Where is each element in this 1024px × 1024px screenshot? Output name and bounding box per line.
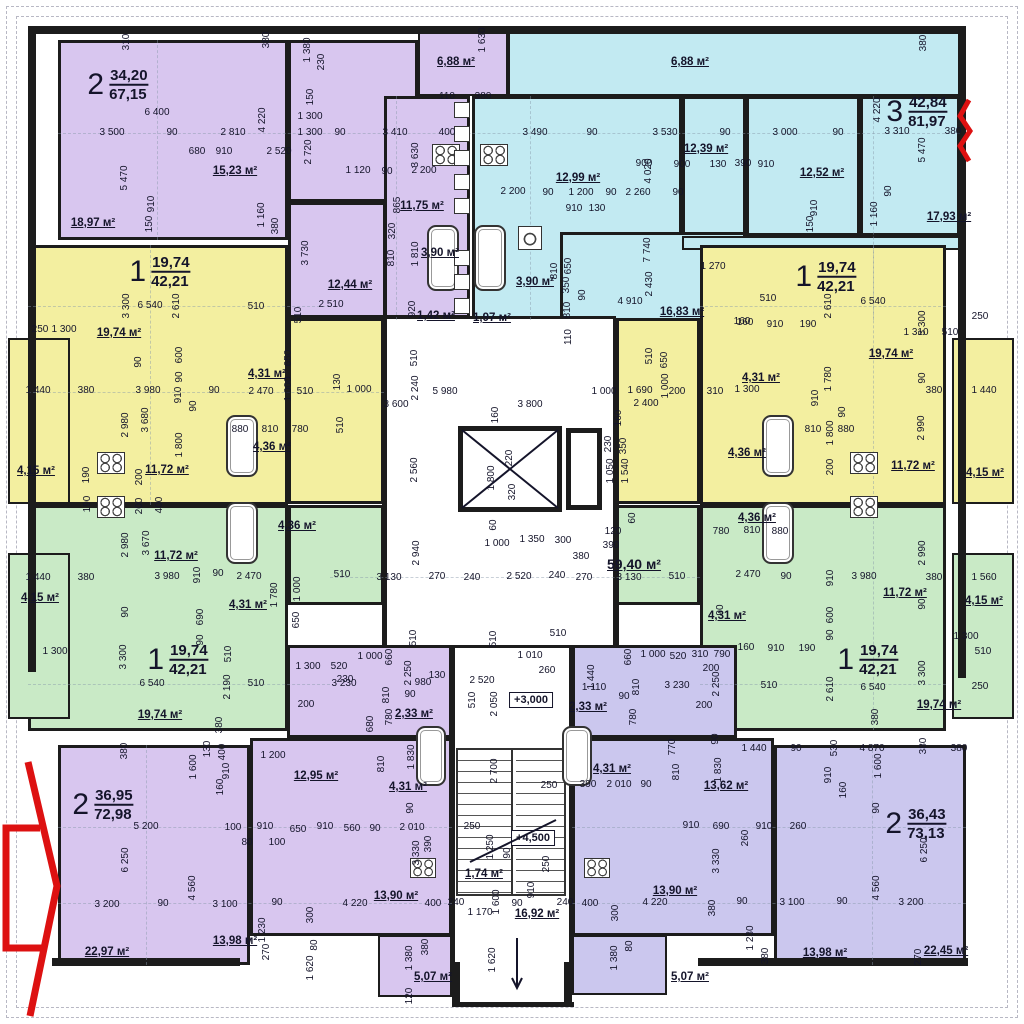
apartment-label: 236,4373,13	[885, 806, 946, 843]
dim-label: 1 780	[270, 582, 280, 607]
balcony-507-left	[378, 935, 452, 997]
wall-segment	[698, 958, 968, 966]
dim-label: 390	[424, 836, 434, 853]
room-area-label: 5,07 м²	[414, 971, 452, 983]
dim-label: 3 130	[616, 573, 641, 583]
dim-label: 380	[919, 35, 929, 52]
wall-segment	[30, 26, 966, 34]
dim-label: 1 600	[492, 889, 502, 914]
room-area-label: 19,74 м²	[97, 327, 141, 339]
dim-label: 3 200	[94, 900, 119, 910]
dim-label: 130	[333, 374, 343, 391]
dim-label: 780	[385, 709, 395, 726]
dim-label: 910	[527, 882, 537, 899]
tub-icon	[226, 502, 258, 564]
stove-icon	[97, 496, 125, 518]
shaft-icon	[566, 428, 602, 510]
dim-label: 90	[838, 406, 848, 417]
dim-label: 190	[83, 496, 93, 513]
dim-label: 2 010	[606, 780, 631, 790]
dim-label: 400	[155, 497, 165, 514]
dim-label: 1 000	[591, 387, 616, 397]
dim-label: 380	[573, 552, 590, 562]
apt1-yl-col	[288, 318, 384, 504]
floor-plan: 3103801 3802301506 4003 500902 8104 2201…	[0, 0, 1024, 1024]
dim-label: 380	[475, 92, 492, 102]
dim-label: 90	[271, 898, 282, 908]
dim-label: 2 560	[410, 457, 420, 482]
dim-label: 810	[632, 679, 642, 696]
dim-label: 650	[292, 612, 302, 629]
dim-label: 4 220	[873, 97, 883, 122]
dim-label: 530	[830, 740, 840, 757]
dim-label: 320	[508, 484, 518, 501]
dim-label: 90	[369, 824, 380, 834]
dim-label: 90	[790, 744, 801, 754]
dim-label: 1 540	[621, 458, 631, 483]
dim-label: 1 300	[295, 662, 320, 672]
room-area-label: 6,88 м²	[437, 56, 475, 68]
dim-label: 2 400	[633, 399, 658, 409]
dim-label: 510	[248, 679, 265, 689]
dim-label: 3 530	[652, 128, 677, 138]
dim-label: 3 680	[141, 407, 151, 432]
dim-label: 3 600	[383, 400, 408, 410]
dim-label: 880	[772, 527, 789, 537]
dim-label: 1 380	[610, 945, 620, 970]
dim-label: 910	[767, 320, 784, 330]
dim-label: 100	[269, 838, 286, 848]
dim-label: 910	[257, 822, 274, 832]
room-area-label: 12,39 м²	[684, 143, 728, 155]
dim-label: 910	[810, 200, 820, 217]
room-area-label: 6,88 м²	[671, 56, 709, 68]
room-area-label: 15,23 м²	[213, 165, 257, 177]
room-area-label: 4,36 м²	[253, 441, 291, 453]
dim-label: 380	[78, 386, 95, 396]
dim-label: 690	[196, 609, 206, 626]
total-area-value: 42,21	[151, 273, 191, 290]
dim-label: 3 980	[154, 572, 179, 582]
dim-label: 1 600	[874, 753, 884, 778]
dim-label: 910	[216, 147, 233, 157]
room-area-label: 1,74 м²	[465, 868, 503, 880]
dim-label: 130	[429, 671, 446, 681]
dim-label: 2 470	[236, 572, 261, 582]
dim-label: 5 470	[120, 165, 130, 190]
apartment-label: 236,9572,98	[72, 787, 133, 824]
apt3-top-strip	[508, 26, 960, 96]
room-area-label: 11,72 м²	[883, 587, 927, 599]
dim-label: 230	[604, 436, 614, 453]
total-area-value: 81,97	[908, 113, 948, 130]
dim-label: 120	[405, 988, 415, 1005]
stove-icon	[97, 452, 125, 474]
dim-label: 1 810	[411, 241, 421, 266]
dim-label: 2 810	[220, 128, 245, 138]
dim-label: 90	[121, 606, 131, 617]
room-area-label: 22,97 м²	[85, 946, 129, 958]
dim-label: 250	[464, 822, 481, 832]
apartment-areas: 36,4373,13	[907, 806, 947, 843]
dim-label: 160	[216, 779, 226, 796]
dim-label: 350	[619, 438, 629, 455]
dim-label: 510	[550, 629, 567, 639]
box-icon	[454, 150, 470, 166]
dim-label: 400	[582, 899, 599, 909]
dim-label: 910	[317, 822, 334, 832]
dim-label: 100	[225, 823, 242, 833]
dim-label: 2 700	[490, 758, 500, 783]
dim-label: 910	[826, 570, 836, 587]
dim-label: 1 000	[484, 539, 509, 549]
wash-icon	[518, 226, 542, 250]
dim-label: 1 000	[357, 652, 382, 662]
room-area-label: 4,15 м²	[17, 465, 55, 477]
tub-icon	[762, 415, 794, 477]
room-area-label: 59,40 м²	[607, 556, 661, 572]
apartment-label: 342,8481,97	[886, 94, 947, 131]
room-area-label: 11,72 м²	[891, 460, 935, 472]
dim-label: 90	[832, 128, 843, 138]
dim-label: 80	[310, 939, 320, 950]
dim-label: 200	[135, 469, 145, 486]
dim-label: 300	[306, 907, 316, 924]
dim-label: 130	[589, 204, 606, 214]
dim-label: 2 200	[500, 187, 525, 197]
dim-label: 5 980	[432, 387, 457, 397]
dim-label: 1 440	[971, 386, 996, 396]
total-area-value: 42,21	[817, 278, 857, 295]
dim-label: 3 630	[411, 142, 421, 167]
dim-label: 2 610	[826, 676, 836, 701]
dim-label: 810	[672, 764, 682, 781]
dim-label: 650	[660, 352, 670, 369]
dim-label: 1 160	[257, 202, 267, 227]
dim-label: 240	[448, 898, 465, 908]
apartment-label: 119,7442,21	[147, 642, 208, 679]
box-icon	[454, 198, 470, 214]
dim-label: 90	[406, 802, 416, 813]
dim-label: 380	[919, 738, 929, 755]
dim-label: 90	[711, 733, 721, 744]
wall-segment	[958, 26, 966, 678]
dim-label: 790	[714, 650, 731, 660]
dim-label: 510	[336, 417, 346, 434]
dim-label: 510	[410, 350, 420, 367]
dim-label: 270	[262, 944, 272, 961]
dim-label: 2 940	[412, 540, 422, 565]
dim-label: 1 300	[297, 112, 322, 122]
dim-label: 230	[337, 675, 354, 685]
apartment-rooms-count: 1	[129, 255, 146, 289]
dim-label: 510	[669, 572, 686, 582]
dim-label: 380	[215, 717, 225, 734]
dim-label: 380	[271, 218, 281, 235]
axis-line	[28, 684, 330, 685]
dim-label: 510	[297, 387, 314, 397]
room-area-label: 11,75 м²	[400, 200, 444, 212]
axis-line	[157, 40, 158, 240]
dim-label: 310	[122, 34, 132, 51]
apartment-areas: 34,2067,15	[109, 67, 149, 104]
dim-label: 4 910	[617, 297, 642, 307]
dim-label: 520	[670, 652, 687, 662]
dim-label: 350	[562, 277, 572, 294]
dim-label: 3 330	[712, 848, 722, 873]
dim-label: 160	[491, 407, 501, 424]
dim-label: 1 000	[346, 385, 371, 395]
apartment-rooms-count: 3	[886, 95, 903, 129]
dim-label: 6 540	[860, 297, 885, 307]
dim-label: 400	[425, 899, 442, 909]
dim-label: 2 990	[917, 415, 927, 440]
dim-label: 300	[555, 536, 572, 546]
dim-label: 1 780	[824, 366, 834, 391]
dim-label: 510	[761, 681, 778, 691]
dim-label: 1 120	[345, 166, 370, 176]
room-area-label: 4,31 м²	[229, 599, 267, 611]
dim-label: 650	[284, 350, 294, 367]
dim-label: 1 440	[741, 744, 766, 754]
dim-label: 1 110	[582, 683, 606, 693]
dim-label: 1 440	[25, 573, 50, 583]
dim-label: 270	[914, 949, 924, 966]
living-area-value: 36,95	[94, 787, 134, 806]
dim-label: 380	[708, 900, 718, 917]
dim-label: 2 520	[469, 676, 494, 686]
dim-label: 400	[439, 128, 456, 138]
axis-line	[58, 827, 452, 828]
dim-label: 380	[421, 939, 431, 956]
dim-label: 1 000	[640, 650, 665, 660]
dim-label: 510	[645, 348, 655, 365]
dim-label: 2 510	[318, 300, 343, 310]
dim-label: 90	[836, 897, 847, 907]
dim-label: 380	[871, 709, 881, 726]
room-area-label: 2,33 м²	[569, 701, 607, 713]
dim-label: 810	[563, 302, 573, 319]
dim-label: 1 800	[826, 420, 836, 445]
dim-label: 6 250	[121, 847, 131, 872]
dim-label: 250	[972, 312, 989, 322]
dim-label: 1 300	[42, 647, 67, 657]
room-area-label: 13,98 м²	[213, 935, 257, 947]
living-area-value: 36,43	[907, 806, 947, 825]
dim-label: 1 200	[568, 188, 593, 198]
room-area-label: 12,44 м²	[328, 279, 372, 291]
dim-label: 90	[586, 128, 597, 138]
level-mark: +4,500	[511, 830, 555, 846]
room-area-label: 13,98 м²	[803, 947, 847, 959]
apartment-rooms-count: 1	[795, 260, 812, 294]
room-area-label: 4,15 м²	[966, 467, 1004, 479]
apt2-br-living	[774, 745, 966, 965]
dim-label: 660	[624, 649, 634, 666]
dim-label: 2 010	[399, 823, 424, 833]
dim-label: 250	[541, 781, 558, 791]
dim-label: 110	[564, 329, 574, 345]
dim-label: 240	[557, 898, 574, 908]
dim-label: 90	[381, 167, 392, 177]
living-area-value: 34,20	[109, 67, 149, 86]
dim-label: 90	[503, 847, 513, 858]
dim-label: 3 000	[772, 128, 797, 138]
dim-label: 380	[926, 386, 943, 396]
total-area-value: 72,98	[94, 806, 134, 823]
dim-label: 510	[975, 647, 992, 657]
dim-label: 90	[672, 188, 683, 198]
dim-label: 4 560	[872, 875, 882, 900]
dim-label: 3 490	[522, 128, 547, 138]
dim-label: 900	[674, 160, 691, 170]
dim-label: 120	[605, 527, 622, 537]
dim-label: 2 050	[490, 691, 500, 716]
dim-label: 200	[826, 459, 836, 476]
dim-label: 1 000	[284, 376, 294, 401]
room-area-label: 1,97 м²	[473, 312, 511, 324]
dim-label: 660	[385, 649, 395, 666]
dim-label: 2 250	[404, 660, 414, 685]
dim-label: 90	[134, 356, 144, 367]
axis-line	[700, 684, 946, 685]
dim-label: 560	[344, 824, 361, 834]
dim-label: 600	[826, 607, 836, 624]
dim-label: 2 980	[121, 532, 131, 557]
room-area-label: 5,07 м²	[671, 971, 709, 983]
dim-label: 2 610	[172, 293, 182, 318]
dim-label: 3 330	[412, 840, 422, 865]
total-area-value: 73,13	[907, 825, 947, 842]
dim-label: 4 220	[258, 107, 268, 132]
apartment-areas: 19,7442,21	[859, 642, 899, 679]
dim-label: 90	[780, 572, 791, 582]
dim-label: 510	[294, 307, 304, 324]
dim-label: 380	[951, 744, 968, 754]
dim-label: 1 350	[519, 535, 544, 545]
dim-label: 1 010	[517, 651, 542, 661]
dim-label: 780	[713, 527, 730, 537]
dim-label: 200	[298, 700, 315, 710]
dim-label: 2 990	[918, 540, 928, 565]
dim-label: 510	[760, 294, 777, 304]
dim-label: 190	[800, 320, 817, 330]
room-area-label: 13,90 м²	[653, 885, 697, 897]
dim-label: 230	[317, 54, 327, 71]
stove-icon	[850, 496, 878, 518]
room-area-label: 4,31 м²	[389, 781, 427, 793]
dim-label: 780	[292, 425, 309, 435]
wall-segment	[452, 962, 460, 1006]
dim-label: 250	[972, 682, 989, 692]
dim-label: 1 440	[25, 386, 50, 396]
dim-label: 6 400	[144, 108, 169, 118]
dim-label: 90	[189, 400, 199, 411]
dim-label: 1 300	[734, 385, 759, 395]
dim-label: 380	[926, 573, 943, 583]
apartment-label: 234,2067,15	[87, 67, 148, 104]
dim-label: 880	[232, 425, 249, 435]
tub-icon	[474, 225, 506, 291]
wall-segment	[564, 962, 572, 1006]
dim-label: 2 190	[223, 674, 233, 699]
dim-label: 1 620	[306, 955, 316, 980]
dim-label: 910	[768, 644, 785, 654]
room-area-label: 4,15 м²	[21, 592, 59, 604]
dim-label: 1 000	[293, 576, 303, 601]
wall-segment	[452, 1002, 574, 1007]
dim-label: 80	[625, 940, 635, 951]
dim-label: 510	[248, 302, 265, 312]
room-area-label: 4,36 м²	[728, 447, 766, 459]
dim-label: 770	[668, 739, 678, 756]
room-area-label: 3,90 м²	[421, 247, 459, 259]
apartment-areas: 19,7442,21	[151, 254, 191, 291]
dim-label: 5 200	[133, 822, 158, 832]
dim-label: 880	[838, 425, 855, 435]
dim-label: 1 630	[478, 27, 488, 52]
box-icon	[454, 126, 470, 142]
dim-label: 3 100	[779, 898, 804, 908]
dim-label: 90	[212, 569, 223, 579]
dim-label: 810	[744, 526, 761, 536]
dim-label: 1 300	[51, 325, 76, 335]
dim-label: 1 230	[746, 925, 756, 950]
room-area-label: 3,90 м²	[516, 276, 554, 288]
apartment-rooms-count: 1	[147, 643, 164, 677]
dim-label: 1 300	[297, 128, 322, 138]
dim-label: 3 980	[851, 572, 876, 582]
apartment-label: 119,7442,21	[837, 642, 898, 679]
dim-label: 910	[174, 387, 184, 404]
dim-label: 7 740	[643, 237, 653, 262]
box-icon	[454, 274, 470, 290]
dim-label: 690	[713, 822, 730, 832]
dim-label: 90	[872, 802, 882, 813]
dim-label: 1 800	[175, 432, 185, 457]
dim-label: 510	[409, 630, 419, 647]
dim-label: 90	[542, 188, 553, 198]
dim-label: 190	[799, 644, 816, 654]
dim-label: 3 730	[301, 240, 311, 265]
dim-label: 270	[429, 572, 446, 582]
dim-label: 910	[193, 567, 203, 584]
dim-label: 3 100	[212, 900, 237, 910]
dim-label: 260	[790, 822, 807, 832]
dim-label: 90	[578, 289, 588, 300]
dim-label: 3 670	[142, 530, 152, 555]
dim-label: 200	[135, 498, 145, 515]
dim-label: 160	[738, 643, 755, 653]
dim-label: 60	[489, 519, 499, 530]
dim-label: 400	[218, 744, 228, 761]
room-area-label: 1,42 м²	[417, 310, 455, 322]
dim-label: 250	[542, 856, 552, 873]
apartment-areas: 42,8481,97	[908, 94, 948, 131]
apartment-areas: 36,9572,98	[94, 787, 134, 824]
dim-label: 2 240	[411, 375, 421, 400]
balcony-yl-415	[8, 338, 70, 504]
dim-label: 160	[737, 318, 754, 328]
dim-label: 910	[758, 160, 775, 170]
dim-label: 1 830	[714, 757, 724, 782]
room-area-label: 12,99 м²	[556, 172, 600, 184]
dim-label: 6 540	[139, 679, 164, 689]
dim-label: 90	[918, 372, 928, 383]
dim-label: 150	[806, 216, 816, 233]
dim-label: 4 220	[342, 899, 367, 909]
dim-label: 160	[839, 782, 849, 799]
